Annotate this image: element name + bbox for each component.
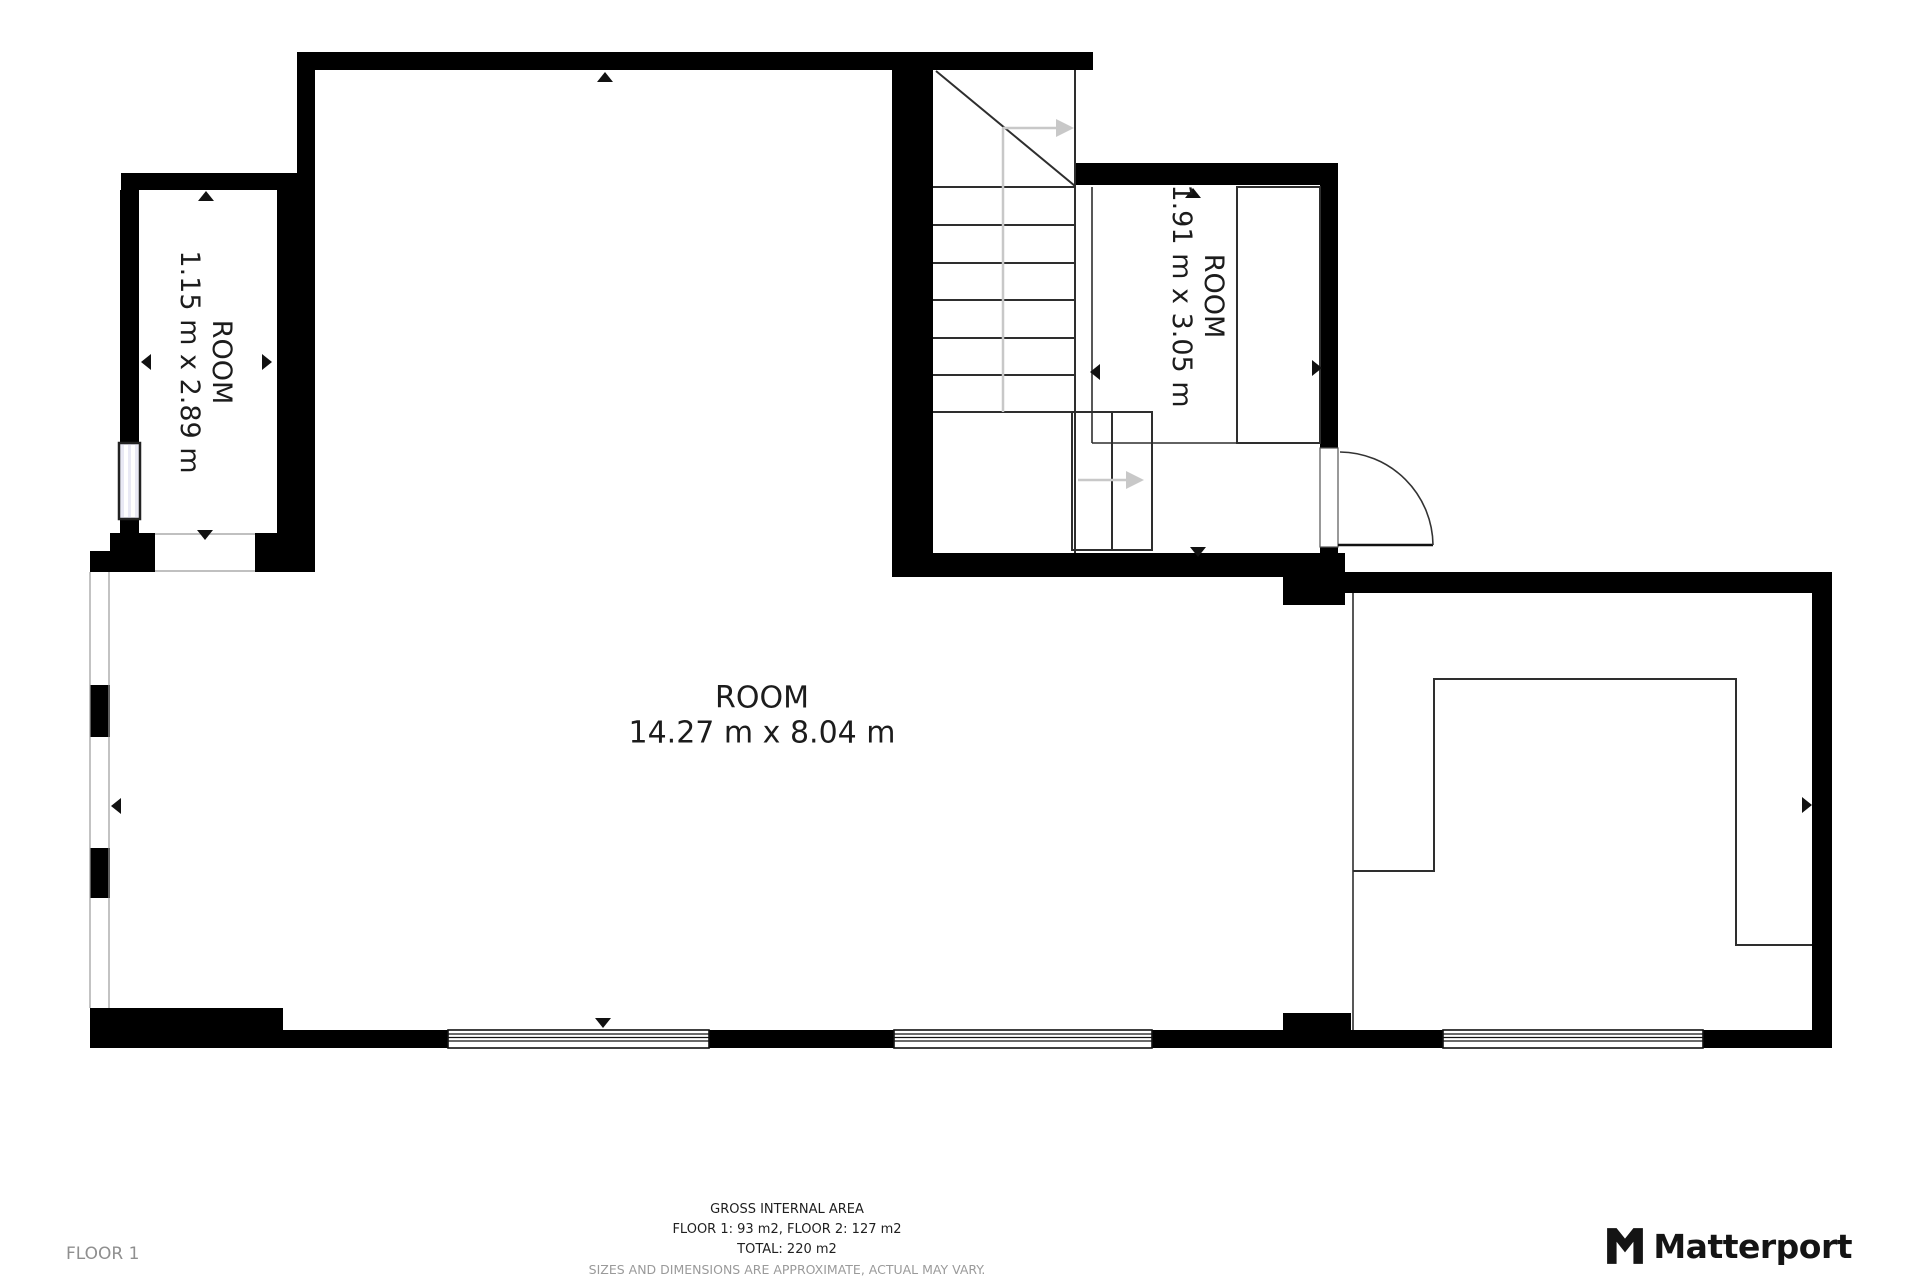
wall [297,70,315,190]
marker-down-icon [197,530,213,540]
window-bottom-3 [1443,1030,1703,1048]
wall [283,1030,448,1048]
door-jamb [1320,448,1338,547]
room-name: ROOM [1197,184,1229,407]
wall [121,173,297,190]
interior-lines [90,187,1812,1030]
wall [1345,572,1832,593]
wall [90,551,110,572]
footer-total: TOTAL: 220 m2 [589,1240,986,1260]
footer-title: GROSS INTERNAL AREA [589,1200,986,1220]
wall [1152,1030,1443,1048]
door [1320,448,1433,547]
wall [255,533,315,572]
wall [90,1008,283,1048]
wall [1320,185,1338,450]
room-dimensions: 1.15 m x 2.89 m [173,250,205,473]
marker-up-icon [198,191,214,201]
wall [297,52,1093,70]
marker-right-icon [262,354,272,370]
walk-arrowhead-icon [1056,119,1074,137]
marker-up-icon [597,72,613,82]
footer-disclaimer: SIZES AND DIMENSIONS ARE APPROXIMATE, AC… [589,1260,986,1279]
wall [1074,163,1338,185]
marker-left-icon [141,354,151,370]
brand-logo: Matterport [1605,1226,1852,1266]
wall [1703,1030,1832,1048]
wall [110,533,155,572]
marker-left-icon [111,798,121,814]
marker-down-icon [595,1018,611,1028]
brand-wordmark: Matterport [1653,1227,1852,1266]
matterport-logo-icon [1605,1226,1645,1266]
window-bottom-2 [894,1030,1152,1048]
room-dimensions: 1.91 m x 3.05 m [1165,184,1197,407]
gross-internal-area-note: GROSS INTERNAL AREA FLOOR 1: 93 m2, FLOO… [589,1200,986,1280]
closet-outline [1237,187,1320,443]
wall [1320,545,1338,577]
marker-right-icon [1802,797,1812,813]
room-label-main: ROOM 14.27 m x 8.04 m [628,681,895,752]
walls [90,52,1832,1048]
wall [1283,1013,1351,1030]
markers [111,72,1812,1028]
room-name: ROOM [205,250,237,473]
window-bottom-1 [448,1030,709,1048]
window [119,443,140,519]
door-swing-arc [1340,452,1433,545]
counter-outline [1353,679,1812,945]
room-label-left: ROOM 1.15 m x 2.89 m [173,250,237,473]
wall [120,190,139,443]
room-dimensions: 14.27 m x 8.04 m [628,716,895,751]
room-label-right: ROOM 1.91 m x 3.05 m [1165,184,1229,407]
footer-floors: FLOOR 1: 93 m2, FLOOR 2: 127 m2 [589,1220,986,1240]
wall [1812,593,1832,1030]
wall [892,70,933,553]
room-name: ROOM [628,681,895,716]
wall [709,1030,894,1048]
walk-arrowhead-icon [1126,471,1144,489]
floor-selector-label[interactable]: FLOOR 1 [66,1244,139,1264]
wall [892,553,1283,577]
wall [277,190,315,533]
wall [90,685,110,737]
floor-plan-page: ROOM 14.27 m x 8.04 m ROOM 1.15 m x 2.89… [0,0,1920,1280]
floor-plan-drawing [0,0,1920,1280]
wall [90,848,110,898]
